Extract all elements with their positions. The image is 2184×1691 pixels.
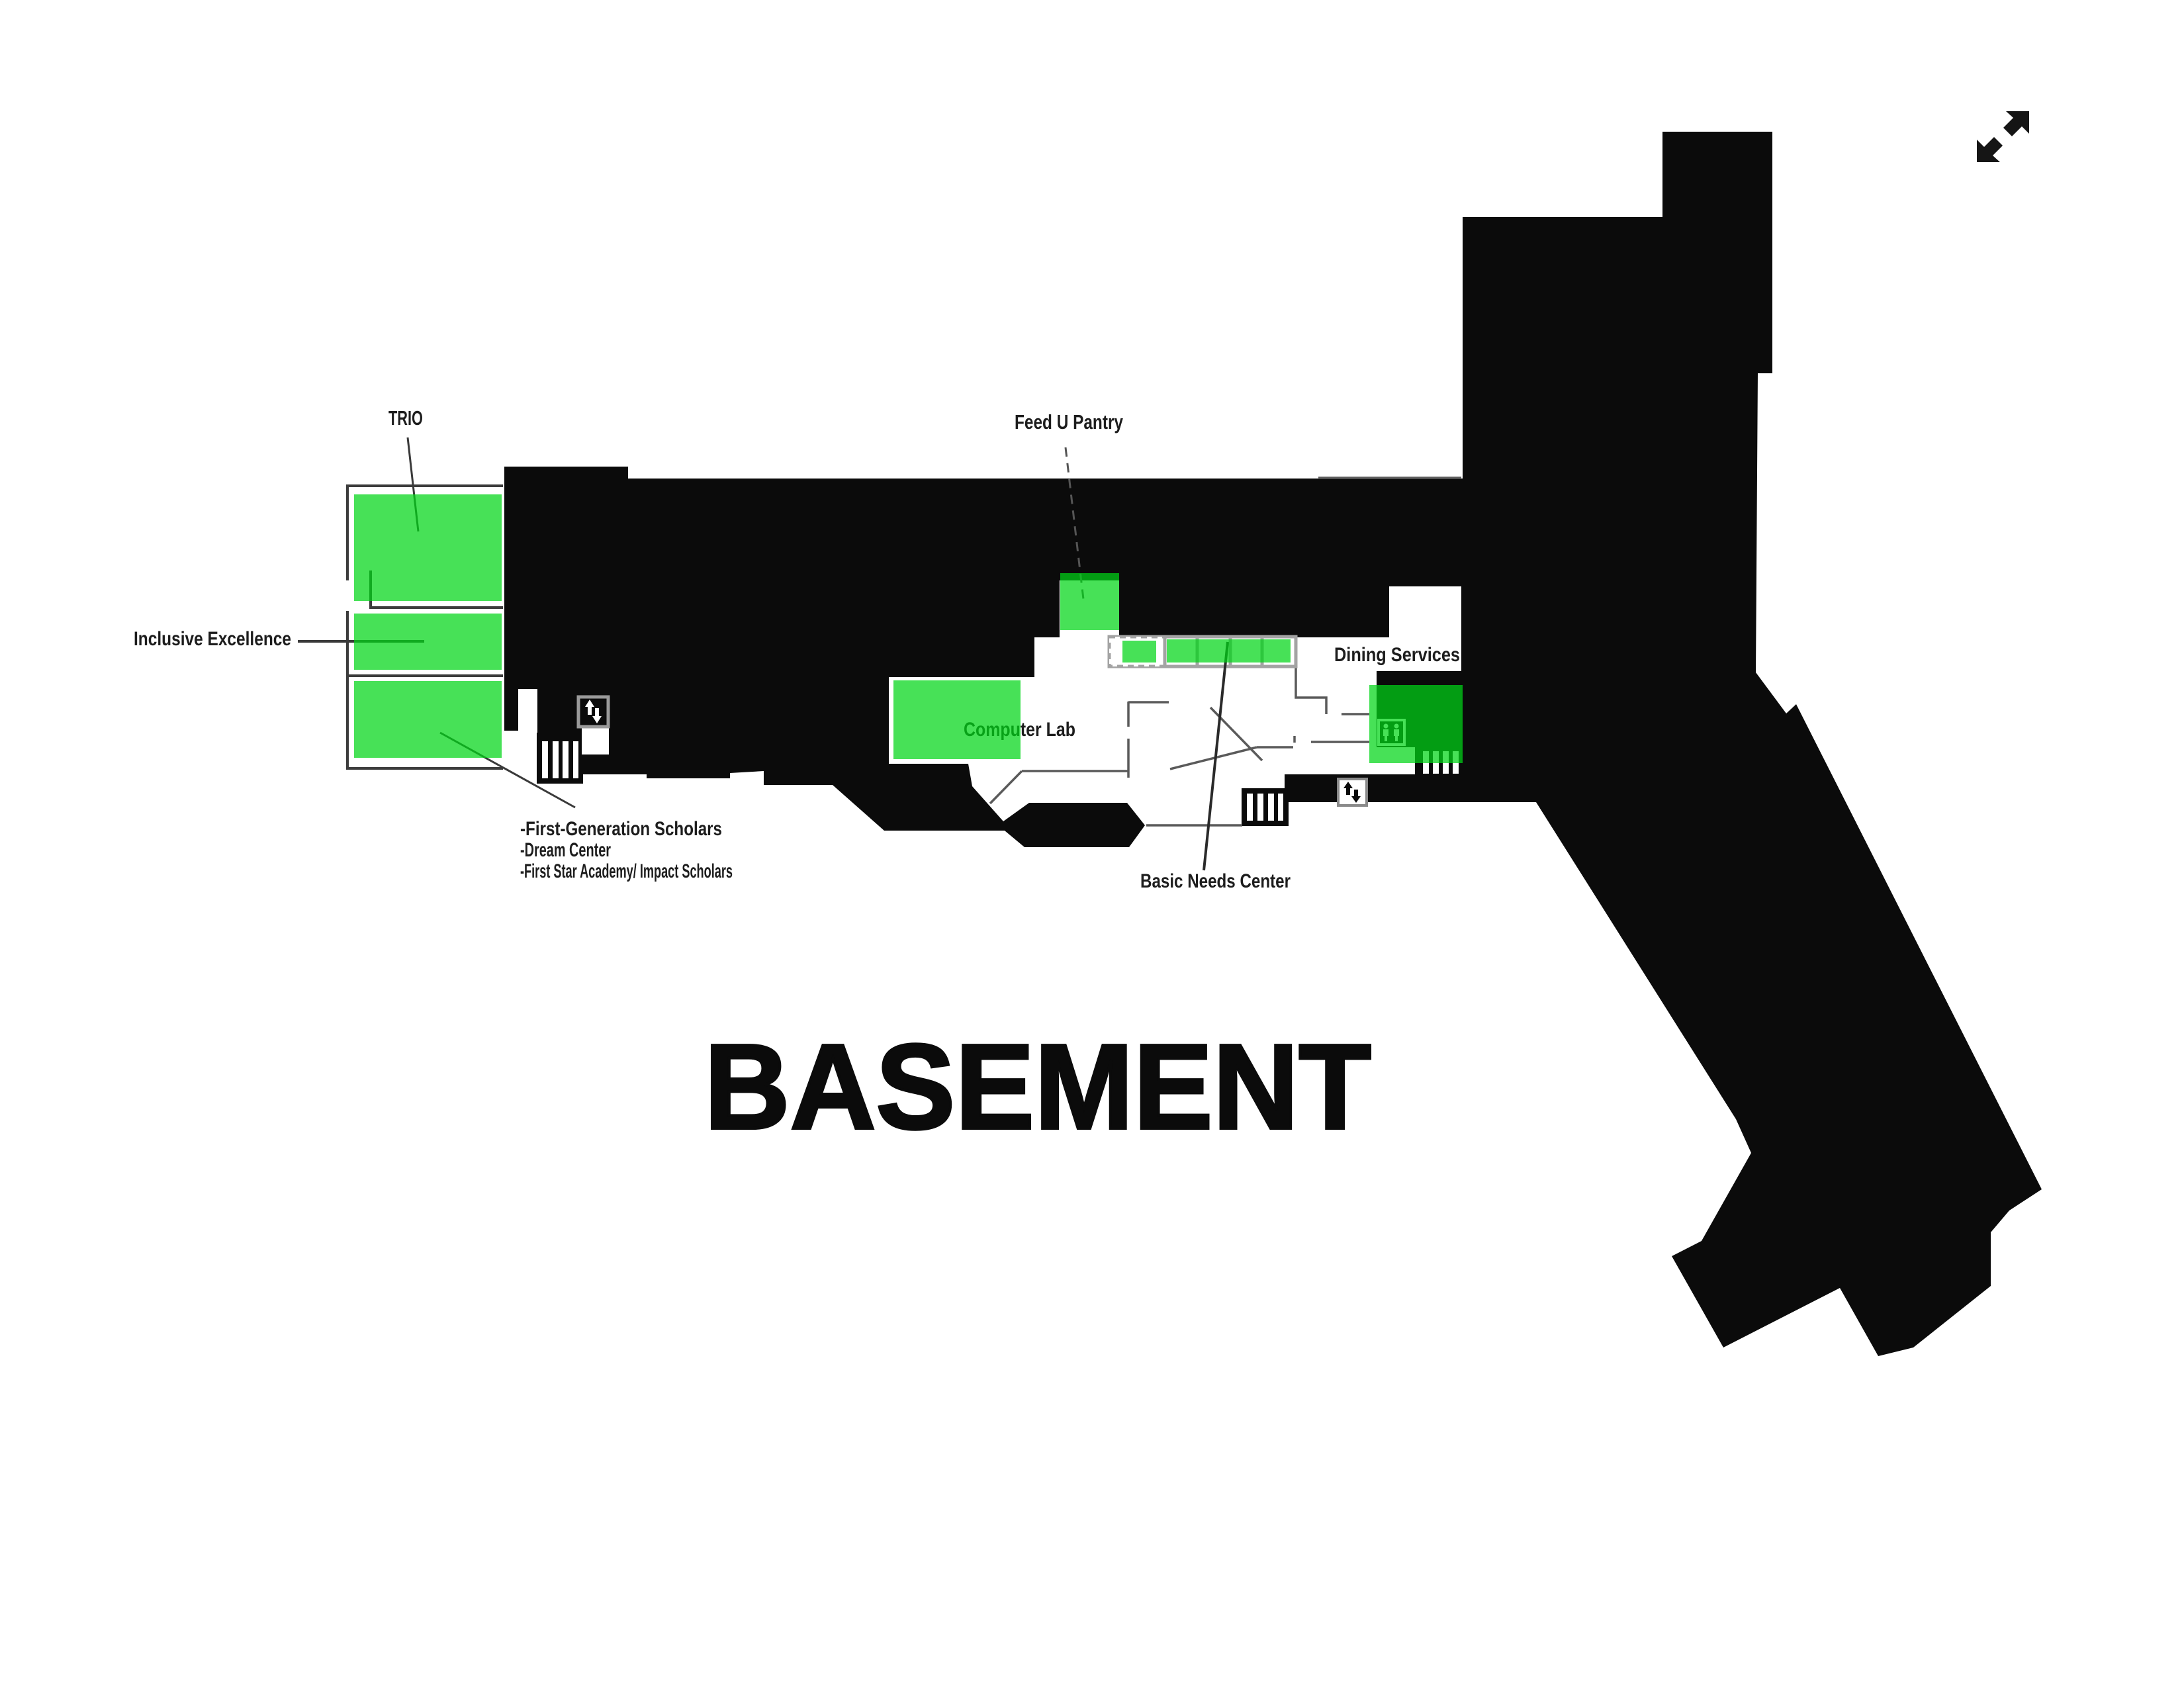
svg-text:Basic Needs Center: Basic Needs Center [1140,870,1291,892]
svg-text:BASEMENT: BASEMENT [704,1019,1371,1154]
svg-text:Dining Services: Dining Services [1334,644,1460,666]
svg-text:Inclusive Excellence: Inclusive Excellence [134,628,291,650]
svg-text:TRIO: TRIO [388,406,423,430]
svg-text:-First-Generation Scholars: -First-Generation Scholars [520,818,722,840]
svg-text:-Dream Center: -Dream Center [520,839,611,861]
svg-text:Feed U Pantry: Feed U Pantry [1015,410,1124,434]
svg-text:-First Star Academy/ Impact Sc: -First Star Academy/ Impact Scholars [520,860,733,882]
